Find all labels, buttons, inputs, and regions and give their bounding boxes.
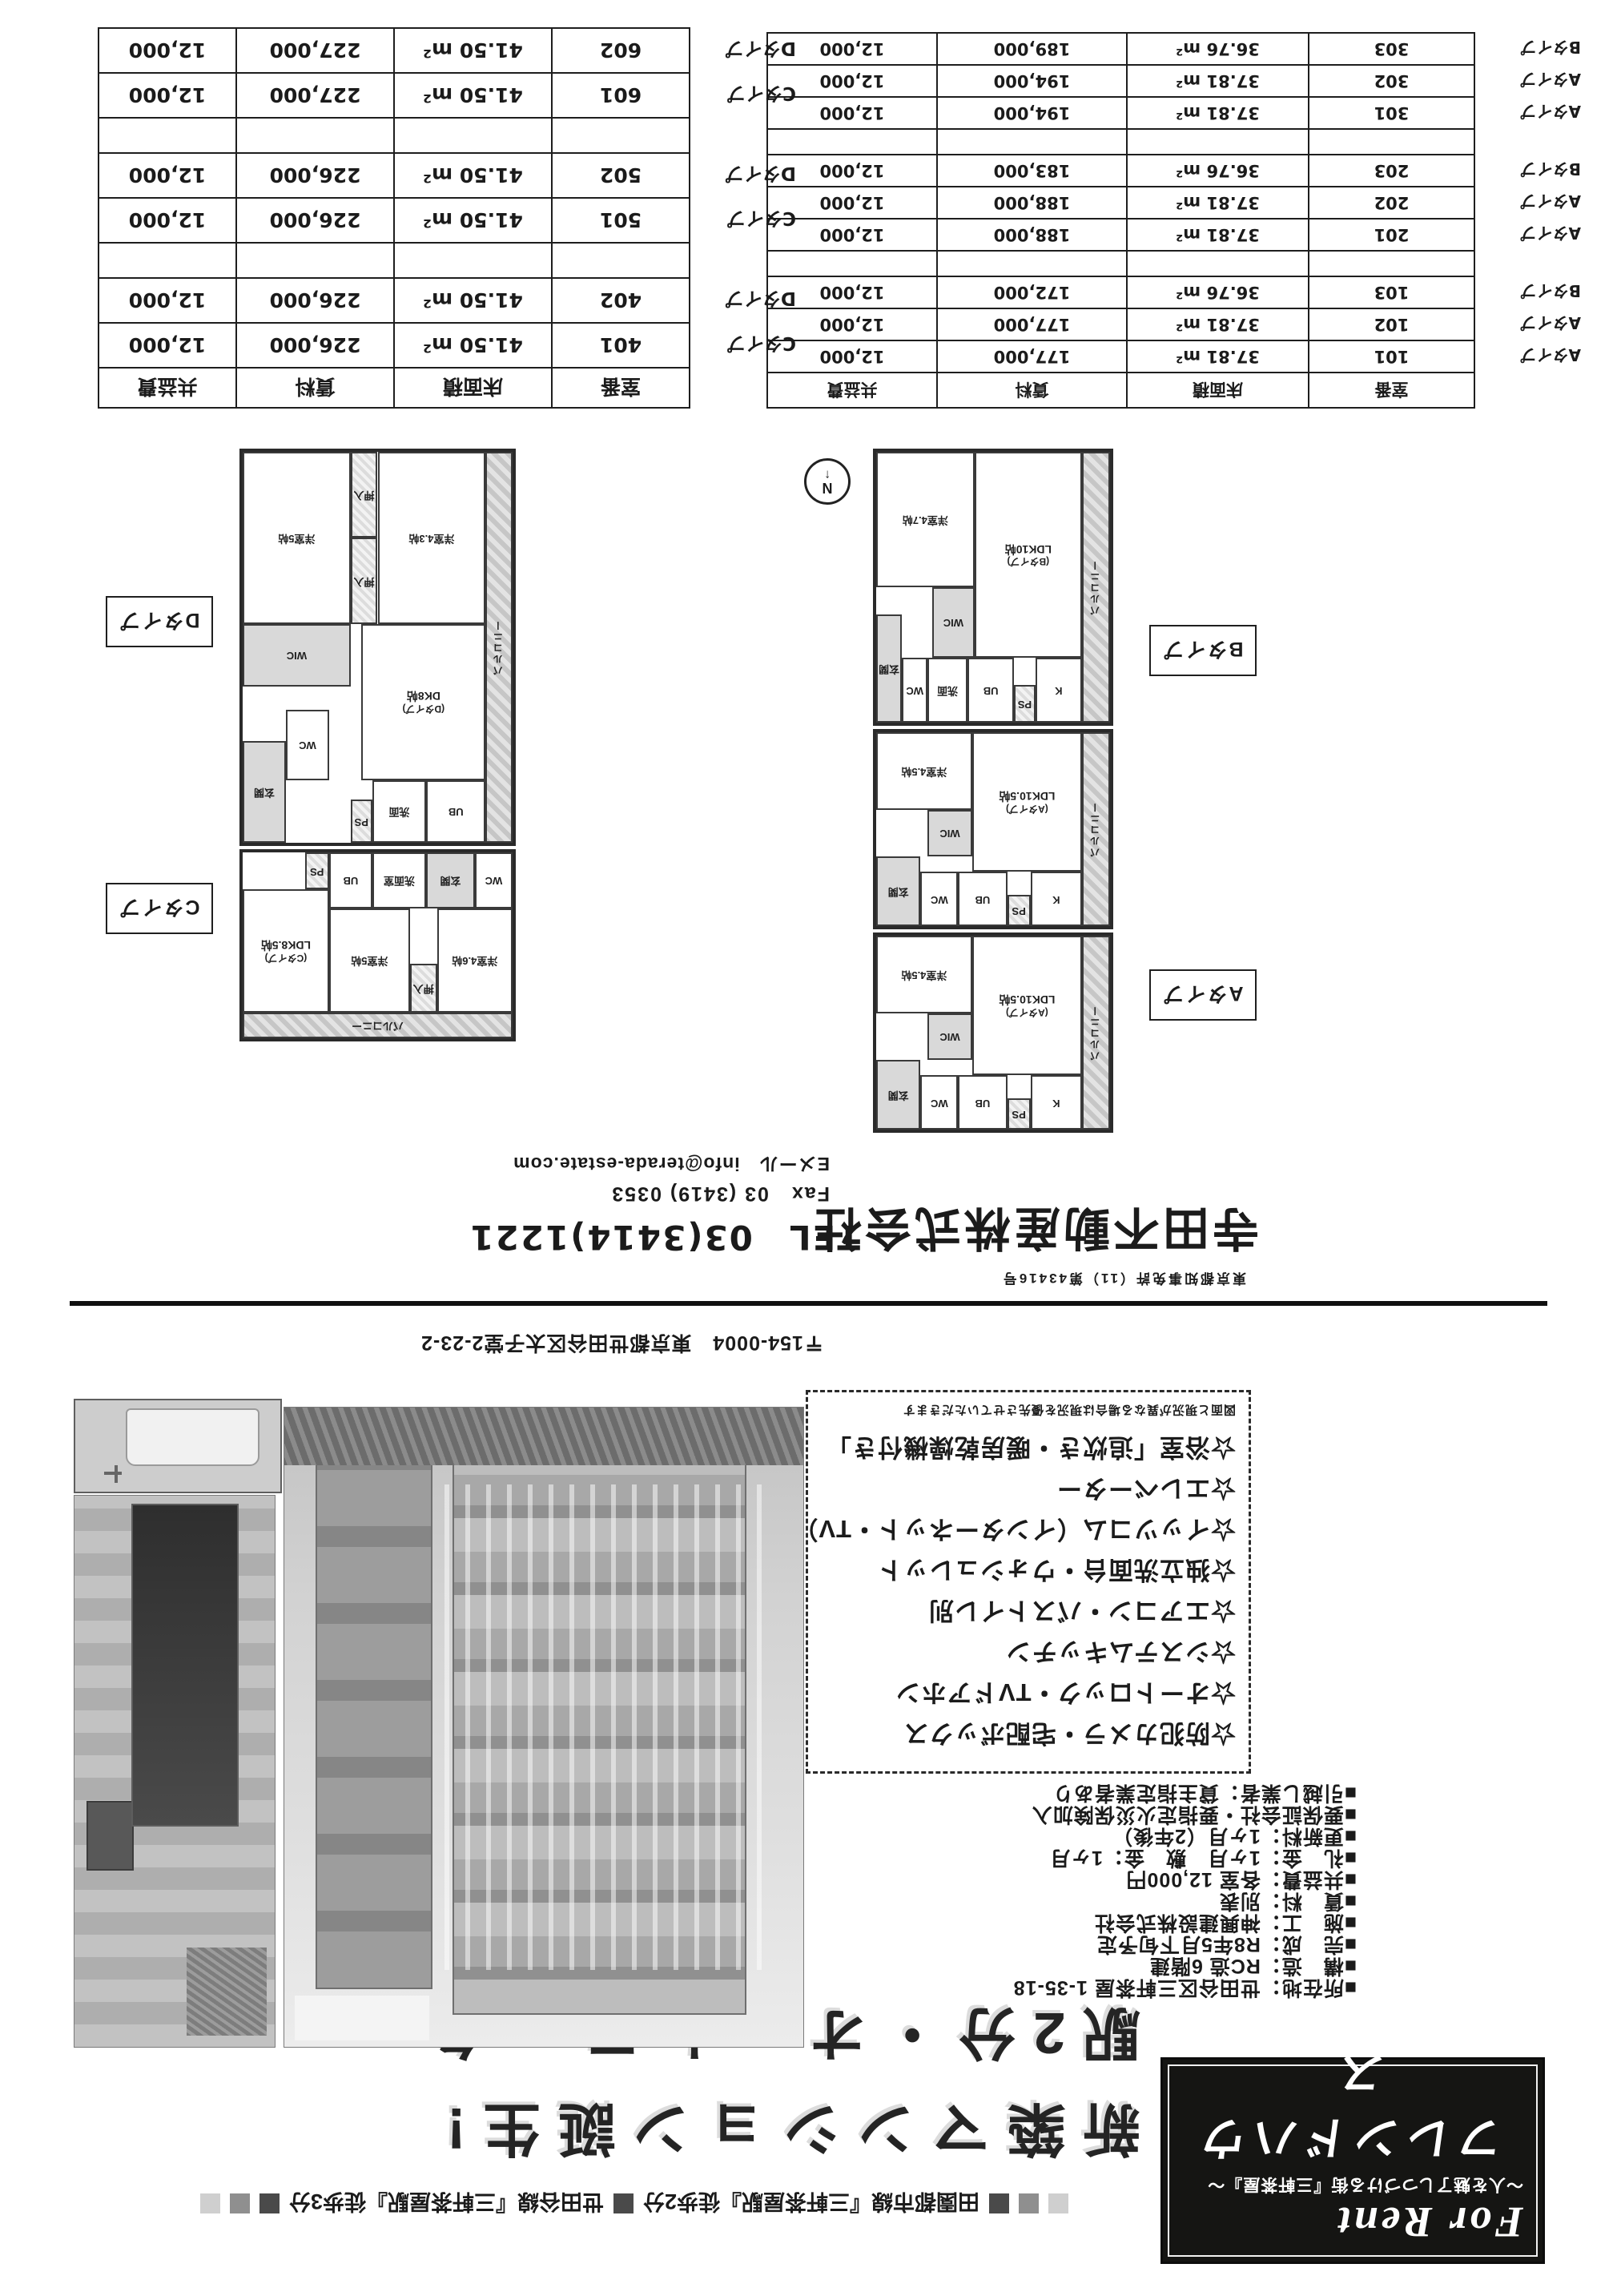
room-number-cell: 103	[1309, 276, 1474, 308]
unit-bath: UB	[426, 780, 485, 843]
property-detail-item: ■引越し業者：貸主指定業者あり	[804, 1782, 1357, 1803]
toilet: WC	[920, 1075, 958, 1130]
pipe-space: PS	[305, 852, 329, 889]
balcony-label: バルコニー	[1091, 559, 1102, 615]
floorplan-unit-a: バルコニー K PS UB WC 玄関 (Aタイプ)LDK10.5帖 WIC 洋…	[873, 932, 1113, 1133]
property-detail-item: ■完 成：R8年5月下旬予定	[804, 1933, 1357, 1955]
features-list: ☆防犯カメラ・宅配ボックス☆オートロック・TVドアホン☆システムキッチン☆エアコ…	[821, 1427, 1236, 1754]
type-label-b: Bタイプ	[1149, 625, 1257, 676]
features-note: 図面と現況が異なる場合は現況を優先させていただきます	[821, 1402, 1236, 1419]
floorplan-unit-d: バルコニー UB 洗面 PS 玄関 WC (Dタイプ)DK8帖 洋室4.3帖 押…	[239, 449, 516, 846]
fee-cell: 12,000	[99, 323, 236, 368]
floor-area-cell: 41.50 m²	[394, 153, 552, 198]
for-rent-banner-inner: For Rent ～人を魅了しつづける街『三軒茶屋』～ フレンドハウス	[1168, 2064, 1538, 2257]
col-header-room: 室番	[552, 368, 690, 408]
bedroom-1: 洋室5帖	[243, 452, 351, 624]
bedroom-2: 洋室4.6帖	[437, 908, 513, 1013]
floor-area-cell	[394, 118, 552, 153]
entrance-photo	[74, 1495, 276, 2048]
kitchen: K	[1031, 872, 1082, 926]
company-tel: TEL 03(3414)1221	[469, 1215, 860, 1264]
unit-type-label: (Cタイプ)	[265, 952, 308, 963]
unit-type-label: (Dタイプ)	[402, 703, 444, 714]
deco-square-mid	[230, 2193, 250, 2213]
company-address: 〒154-0004 東京都世田谷区太子堂2-23-2	[420, 1330, 824, 1359]
feature-item: ☆システムキッチン	[821, 1631, 1236, 1672]
unit-type-cell: Bタイプ	[1474, 276, 1589, 308]
room-number-cell: 402	[552, 278, 690, 323]
table-row: Dタイプ 402 41.50 m² 226,000 12,000	[99, 278, 804, 323]
ldk-size-label: LDK8.5帖	[261, 939, 311, 952]
property-detail-item: ■賃 料：別表	[804, 1890, 1357, 1911]
kitchen: K	[1031, 1075, 1082, 1130]
type-column-header	[690, 368, 804, 408]
fee-cell: 12,000	[99, 28, 236, 73]
headline-line-1: 新築マンション誕生!	[67, 2092, 1140, 2176]
unit-type-cell: Aタイプ	[1474, 187, 1589, 219]
bathroom-photo	[74, 1399, 282, 1493]
col-header-fee: 共益費	[99, 368, 236, 408]
room-number-cell: 602	[552, 28, 690, 73]
property-name: フレンドハウス	[1173, 2044, 1533, 2173]
floor-area-cell: 37.81 m²	[1127, 97, 1309, 129]
pipe-space: PS	[1008, 895, 1031, 926]
unit-type-cell: Bタイプ	[1474, 155, 1589, 187]
for-rent-banner: For Rent ～人を魅了しつづける街『三軒茶屋』～ フレンドハウス	[1160, 2057, 1545, 2264]
rent-cell	[236, 243, 394, 278]
feature-item: ☆オートロック・TVドアホン	[821, 1672, 1236, 1713]
room-number-cell: 401	[552, 323, 690, 368]
floor-area-cell: 37.81 m²	[1127, 187, 1309, 219]
entry: 玄関	[876, 1060, 920, 1130]
features-box: ☆防犯カメラ・宅配ボックス☆オートロック・TVドアホン☆システムキッチン☆エアコ…	[806, 1390, 1251, 1774]
bedroom: 洋室4.5帖	[876, 936, 972, 1013]
sky-area	[295, 1996, 429, 2040]
unit-bath: UB	[329, 852, 372, 908]
intercom-panel	[86, 1801, 134, 1871]
closet: 押入	[410, 964, 437, 1012]
balcony: バルコニー	[485, 452, 513, 843]
walk-in-closet: WIC	[932, 587, 975, 658]
rent-cell: 183,000	[937, 155, 1127, 187]
floor-area-cell: 37.81 m²	[1127, 219, 1309, 251]
floor-area-cell: 41.50 m²	[394, 28, 552, 73]
bathtub	[126, 1408, 260, 1466]
room-number-cell: 502	[552, 153, 690, 198]
fee-cell: 12,000	[99, 153, 236, 198]
banner-subtitle: ～人を魅了しつづける街『三軒茶屋』～	[1182, 2173, 1523, 2197]
table-row: Bタイプ 303 36.76 m² 189,000 12,000	[767, 33, 1589, 65]
property-detail-item: ■構 造：RC造 6階建	[804, 1955, 1357, 1976]
col-header-area: 床面積	[394, 368, 552, 408]
washroom: 洗面	[372, 780, 426, 843]
unit-bath: UB	[958, 1075, 1007, 1130]
balcony: バルコニー	[1082, 936, 1110, 1130]
unit-type-cell: Cタイプ	[690, 198, 804, 243]
floorplan-unit-c: バルコニー 洋室4.6帖 押入 洋室5帖 (Cタイプ)LDK8.5帖 WC 玄関…	[239, 849, 516, 1041]
room-number-cell: 303	[1309, 33, 1474, 65]
unit-type-cell	[690, 243, 804, 278]
access-line-2: 世田谷線『三軒茶屋駅』徒歩3分	[289, 2188, 604, 2219]
type-label-c: Cタイプ	[106, 883, 213, 934]
faucet-icon	[104, 1472, 122, 1475]
deco-square-dark	[613, 2193, 634, 2213]
table-row: Aタイプ 102 37.81 m² 177,000 12,000	[767, 308, 1589, 340]
floor-area-cell: 37.81 m²	[1127, 65, 1309, 97]
unit-type-cell: Dタイプ	[690, 28, 804, 73]
toilet: WC	[902, 658, 927, 723]
ldk-room: (Bタイプ)LDK10帖	[975, 452, 1082, 658]
unit-type-cell	[1474, 129, 1589, 155]
floor-area-cell	[1127, 251, 1309, 276]
fee-cell: 12,000	[99, 73, 236, 118]
property-detail-item: ■要保証会社・要指定火災保険加入	[804, 1803, 1357, 1825]
company-fax: Fax 03 (3419) 0353	[610, 1181, 830, 1210]
floor-area-cell: 36.76 m²	[1127, 155, 1309, 187]
washroom: 洗面室	[372, 852, 426, 908]
unit-type-cell	[1474, 251, 1589, 276]
unit-type-label: (Bタイプ)	[1007, 556, 1049, 567]
unit-type-cell: Dタイプ	[690, 153, 804, 198]
unit-type-cell: Aタイプ	[1474, 97, 1589, 129]
floor-area-cell: 41.50 m²	[394, 323, 552, 368]
col-header-rent: 賃料	[236, 368, 394, 408]
table-row: Aタイプ 201 37.81 m² 188,000 12,000	[767, 219, 1589, 251]
bedroom: 洋室4.7帖	[876, 452, 975, 587]
entry: 玄関	[426, 852, 475, 908]
floor-area-cell	[394, 243, 552, 278]
room-number-cell: 102	[1309, 308, 1474, 340]
table-row	[99, 243, 804, 278]
unit-type-cell	[690, 118, 804, 153]
table-row: Cタイプ 401 41.50 m² 226,000 12,000	[99, 323, 804, 368]
room-number-cell	[552, 118, 690, 153]
table-row: Cタイプ 601 41.50 m² 227,000 12,000	[99, 73, 804, 118]
table-row: Bタイプ 203 36.76 m² 183,000 12,000	[767, 155, 1589, 187]
rent-cell: 226,000	[236, 278, 394, 323]
type-label-d: Dタイプ	[106, 596, 213, 647]
room-number-cell	[1309, 251, 1474, 276]
table-row: Aタイプ 301 37.81 m² 194,000 12,000	[767, 97, 1589, 129]
company-name: 寺田不動産株式会社	[812, 1198, 1259, 1266]
building-side-wing	[316, 1462, 433, 1989]
property-detail-item: ■所在地：世田谷区三軒茶屋 1-35-18	[804, 1976, 1357, 1998]
table-row: Dタイプ 502 41.50 m² 226,000 12,000	[99, 153, 804, 198]
floor-area-cell	[1127, 129, 1309, 155]
unit-type-cell: Aタイプ	[1474, 308, 1589, 340]
deco-square-dark	[989, 2193, 1009, 2213]
unit-type-cell: Dタイプ	[690, 278, 804, 323]
ground-planting	[284, 1408, 803, 1465]
balcony-label: バルコニー	[1091, 1005, 1102, 1061]
rent-cell: 189,000	[937, 33, 1127, 65]
room-number-cell: 101	[1309, 340, 1474, 373]
unit-type-cell: Aタイプ	[1474, 340, 1589, 373]
rent-cell: 194,000	[937, 97, 1127, 129]
fee-cell	[99, 243, 236, 278]
feature-item: ☆独立洗面台・ウォシュレット	[821, 1549, 1236, 1590]
for-rent-title: For Rent	[1182, 2197, 1523, 2247]
room-number-cell: 201	[1309, 219, 1474, 251]
company-license: 東京都知事免許（11）第43416号	[1001, 1270, 1246, 1290]
building-exterior-photo	[284, 1407, 804, 2048]
floorplan-unit-a: バルコニー K PS UB WC 玄関 (Aタイプ)LDK10.5帖 WIC 洋…	[873, 729, 1113, 929]
pipe-space: PS	[351, 800, 372, 843]
bedroom: 洋室4.5帖	[876, 732, 972, 810]
station-access-line: 田園都市線『三軒茶屋駅』徒歩2分 世田谷線『三軒茶屋駅』徒歩3分	[200, 2188, 1068, 2219]
rent-cell: 177,000	[937, 308, 1127, 340]
unit-type-cell: Aタイプ	[1474, 219, 1589, 251]
feature-item: ☆防犯カメラ・宅配ボックス	[821, 1713, 1236, 1754]
compass-n-label: N	[823, 481, 833, 495]
rent-cell: 227,000	[236, 73, 394, 118]
feature-item: ☆エレベーター	[821, 1468, 1236, 1509]
access-line-1: 田園都市線『三軒茶屋駅』徒歩2分	[643, 2188, 979, 2219]
unit-type-cell: Bタイプ	[1474, 33, 1589, 65]
floor-area-cell: 37.81 m²	[1127, 308, 1309, 340]
room-number-cell: 601	[552, 73, 690, 118]
property-detail-item: ■礼 金：1ヶ月 敷 金：1ヶ月	[804, 1847, 1357, 1868]
table-row: Aタイプ 302 37.81 m² 194,000 12,000	[767, 65, 1589, 97]
col-header-rent: 賃料	[937, 373, 1127, 408]
unit-bath: UB	[967, 658, 1014, 723]
floor-area-cell: 41.50 m²	[394, 73, 552, 118]
price-table-floors-4-6: 室番 床面積 賃料 共益費 Cタイプ 401 41.50 m² 226,000 …	[98, 27, 804, 409]
balcony-label: バルコニー	[493, 619, 505, 675]
balcony: バルコニー	[243, 1013, 513, 1038]
toilet: WC	[920, 872, 958, 926]
walk-in-closet: WIC	[243, 624, 351, 687]
floor-area-cell: 36.76 m²	[1127, 276, 1309, 308]
deco-square-mid	[1019, 2193, 1039, 2213]
unit-type-label: (Aタイプ)	[1006, 803, 1048, 814]
entry: 玄関	[876, 856, 920, 926]
compass-north-icon: N ↑	[804, 458, 851, 505]
balcony: バルコニー	[1082, 732, 1110, 926]
floor-area-cell: 41.50 m²	[394, 198, 552, 243]
scanned-flyer-rotated-180: For Rent ～人を魅了しつづける街『三軒茶屋』～ フレンドハウス 田園都市…	[0, 0, 1621, 2296]
entrance-plant	[187, 1948, 267, 2036]
toilet: WC	[286, 710, 329, 780]
table-row	[99, 118, 804, 153]
table-row: Aタイプ 202 37.81 m² 188,000 12,000	[767, 187, 1589, 219]
table-header-row: 室番 床面積 賃料 共益費	[99, 368, 804, 408]
rent-cell	[937, 129, 1127, 155]
closet: 押入	[351, 538, 378, 623]
room-number-cell: 301	[1309, 97, 1474, 129]
deco-square-dark	[259, 2193, 280, 2213]
entry: 玄関	[243, 741, 286, 843]
unit-type-label: (Aタイプ)	[1006, 1006, 1048, 1017]
table-row	[767, 129, 1589, 155]
price-table-floors-1-3: 室番 床面積 賃料 共益費 Aタイプ 101 37.81 m² 177,000 …	[766, 32, 1589, 409]
type-label-a: Aタイプ	[1149, 969, 1257, 1021]
deco-square-light	[1048, 2193, 1068, 2213]
deco-square-light	[200, 2193, 220, 2213]
table-row	[767, 251, 1589, 276]
faucet-icon	[115, 1465, 118, 1483]
bedroom-2: 洋室4.3帖	[378, 452, 486, 624]
rent-cell: 172,000	[937, 276, 1127, 308]
walk-in-closet: WIC	[927, 810, 971, 856]
room-number-cell: 501	[552, 198, 690, 243]
closet: 押入	[351, 452, 378, 538]
room-number-cell	[552, 243, 690, 278]
col-header-room: 室番	[1309, 373, 1474, 408]
feature-item: ☆浴室「追炊き・暖房乾燥機付き」	[821, 1427, 1236, 1468]
table-row: Cタイプ 501 41.50 m² 226,000 12,000	[99, 198, 804, 243]
compass-arrow-icon: ↑	[824, 468, 831, 481]
walk-in-closet: WIC	[927, 1013, 971, 1060]
table-row: Dタイプ 602 41.50 m² 227,000 12,000	[99, 28, 804, 73]
type-column-header	[1474, 373, 1589, 408]
col-header-area: 床面積	[1127, 373, 1309, 408]
rent-cell: 227,000	[236, 28, 394, 73]
unit-type-cell: Cタイプ	[690, 323, 804, 368]
floorplan-unit-b: バルコニー K PS UB 洗面 WC 玄関 (Bタイプ)LDK10帖 WIC …	[873, 449, 1113, 726]
floor-area-cell: 37.81 m²	[1127, 340, 1309, 373]
balcony: バルコニー	[1082, 452, 1110, 723]
unit-bath: UB	[958, 872, 1007, 926]
balcony-label: バルコニー	[1091, 801, 1102, 857]
ldk-size-label: LDK10.5帖	[999, 993, 1055, 1006]
balcony-rails	[440, 1484, 762, 1970]
table-header-row: 室番 床面積 賃料 共益費	[767, 373, 1589, 408]
pipe-space: PS	[1008, 1098, 1031, 1130]
company-email: Eメール info@terada-estate.com	[513, 1152, 830, 1179]
unit-type-cell: Aタイプ	[1474, 65, 1589, 97]
kitchen: K	[1036, 658, 1082, 723]
washroom: 洗面	[927, 658, 967, 723]
table-row: Bタイプ 103 36.76 m² 172,000 12,000	[767, 276, 1589, 308]
fee-cell: 12,000	[99, 278, 236, 323]
ldk-size-label: LDK10帖	[1005, 543, 1052, 556]
pipe-space: PS	[1014, 685, 1035, 723]
ldk-room: (Aタイプ)LDK10.5帖	[972, 936, 1082, 1075]
property-details-list: ■所在地：世田谷区三軒茶屋 1-35-18■構 造：RC造 6階建■完 成：R8…	[804, 1782, 1357, 1998]
floor-area-cell: 36.76 m²	[1127, 33, 1309, 65]
ldk-room: (Aタイプ)LDK10.5帖	[972, 732, 1082, 872]
rent-cell: 226,000	[236, 153, 394, 198]
dk-size-label: DK8帖	[407, 690, 440, 703]
room-number-cell: 202	[1309, 187, 1474, 219]
ldk-size-label: LDK10.5帖	[999, 790, 1055, 803]
rent-cell: 188,000	[937, 219, 1127, 251]
rent-cell: 226,000	[236, 198, 394, 243]
bedroom-1: 洋室5帖	[329, 908, 410, 1013]
fee-cell	[99, 118, 236, 153]
feature-item: ☆エアコン・バストイレ別	[821, 1590, 1236, 1631]
table-row: Aタイプ 101 37.81 m² 177,000 12,000	[767, 340, 1589, 373]
fee-cell: 12,000	[99, 198, 236, 243]
room-number-cell: 302	[1309, 65, 1474, 97]
floor-area-cell: 41.50 m²	[394, 278, 552, 323]
ldk-room: (Cタイプ)LDK8.5帖	[243, 889, 329, 1012]
entry: 玄関	[876, 614, 902, 723]
rent-cell	[236, 118, 394, 153]
property-detail-item: ■共益費：各室 12,000円	[804, 1868, 1357, 1890]
room-number-cell: 203	[1309, 155, 1474, 187]
property-detail-item: ■施 工：神興建設株式会社	[804, 1911, 1357, 1933]
toilet: WC	[475, 852, 513, 908]
property-detail-item: ■更新料：1ヶ月（2年後）	[804, 1825, 1357, 1847]
rent-cell: 194,000	[937, 65, 1127, 97]
dk-room: (Dタイプ)DK8帖	[361, 624, 485, 780]
rent-cell	[937, 251, 1127, 276]
rent-cell: 177,000	[937, 340, 1127, 373]
balcony-label: バルコニー	[352, 1019, 404, 1031]
feature-item: ☆イッツコム（インターネット・TV）	[821, 1509, 1236, 1549]
entrance-door	[131, 1504, 239, 1827]
divider-rule	[70, 1301, 1547, 1306]
rent-cell: 226,000	[236, 323, 394, 368]
unit-type-cell: Cタイプ	[690, 73, 804, 118]
rent-cell: 188,000	[937, 187, 1127, 219]
room-number-cell	[1309, 129, 1474, 155]
